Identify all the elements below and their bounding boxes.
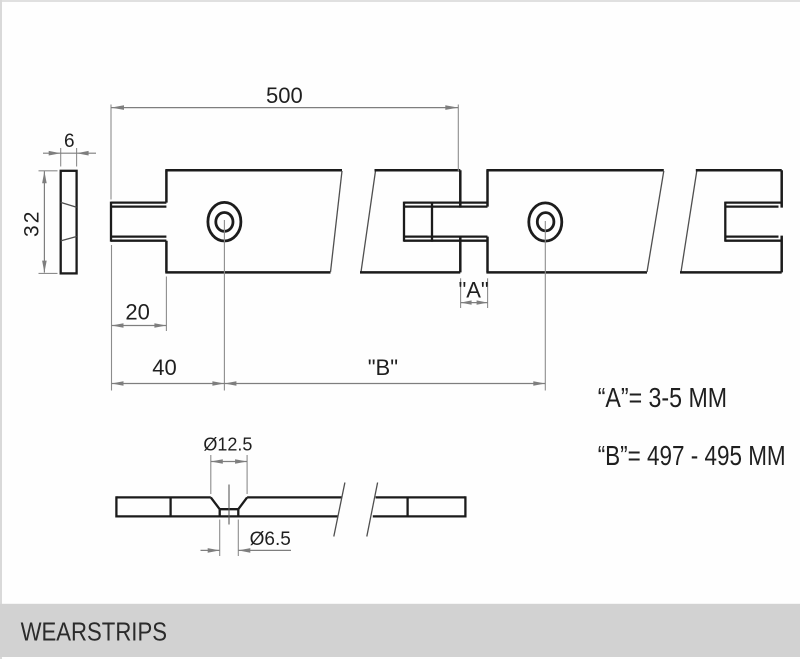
svg-text:Ø6.5: Ø6.5 xyxy=(250,529,291,550)
svg-text:“B”= 497 - 495 MM: “B”= 497 - 495 MM xyxy=(598,441,786,472)
svg-text:"A": "A" xyxy=(458,278,488,303)
svg-text:Ø12.5: Ø12.5 xyxy=(203,434,252,454)
svg-text:6: 6 xyxy=(64,131,75,152)
svg-text:20: 20 xyxy=(125,300,149,325)
svg-text:40: 40 xyxy=(152,355,176,380)
svg-text:“A”= 3-5 MM: “A”= 3-5 MM xyxy=(598,383,727,413)
svg-text:"B": "B" xyxy=(368,355,398,380)
svg-text:500: 500 xyxy=(266,83,303,108)
svg-text:WEARSTRIPS: WEARSTRIPS xyxy=(21,618,167,647)
svg-text:32: 32 xyxy=(20,210,43,237)
